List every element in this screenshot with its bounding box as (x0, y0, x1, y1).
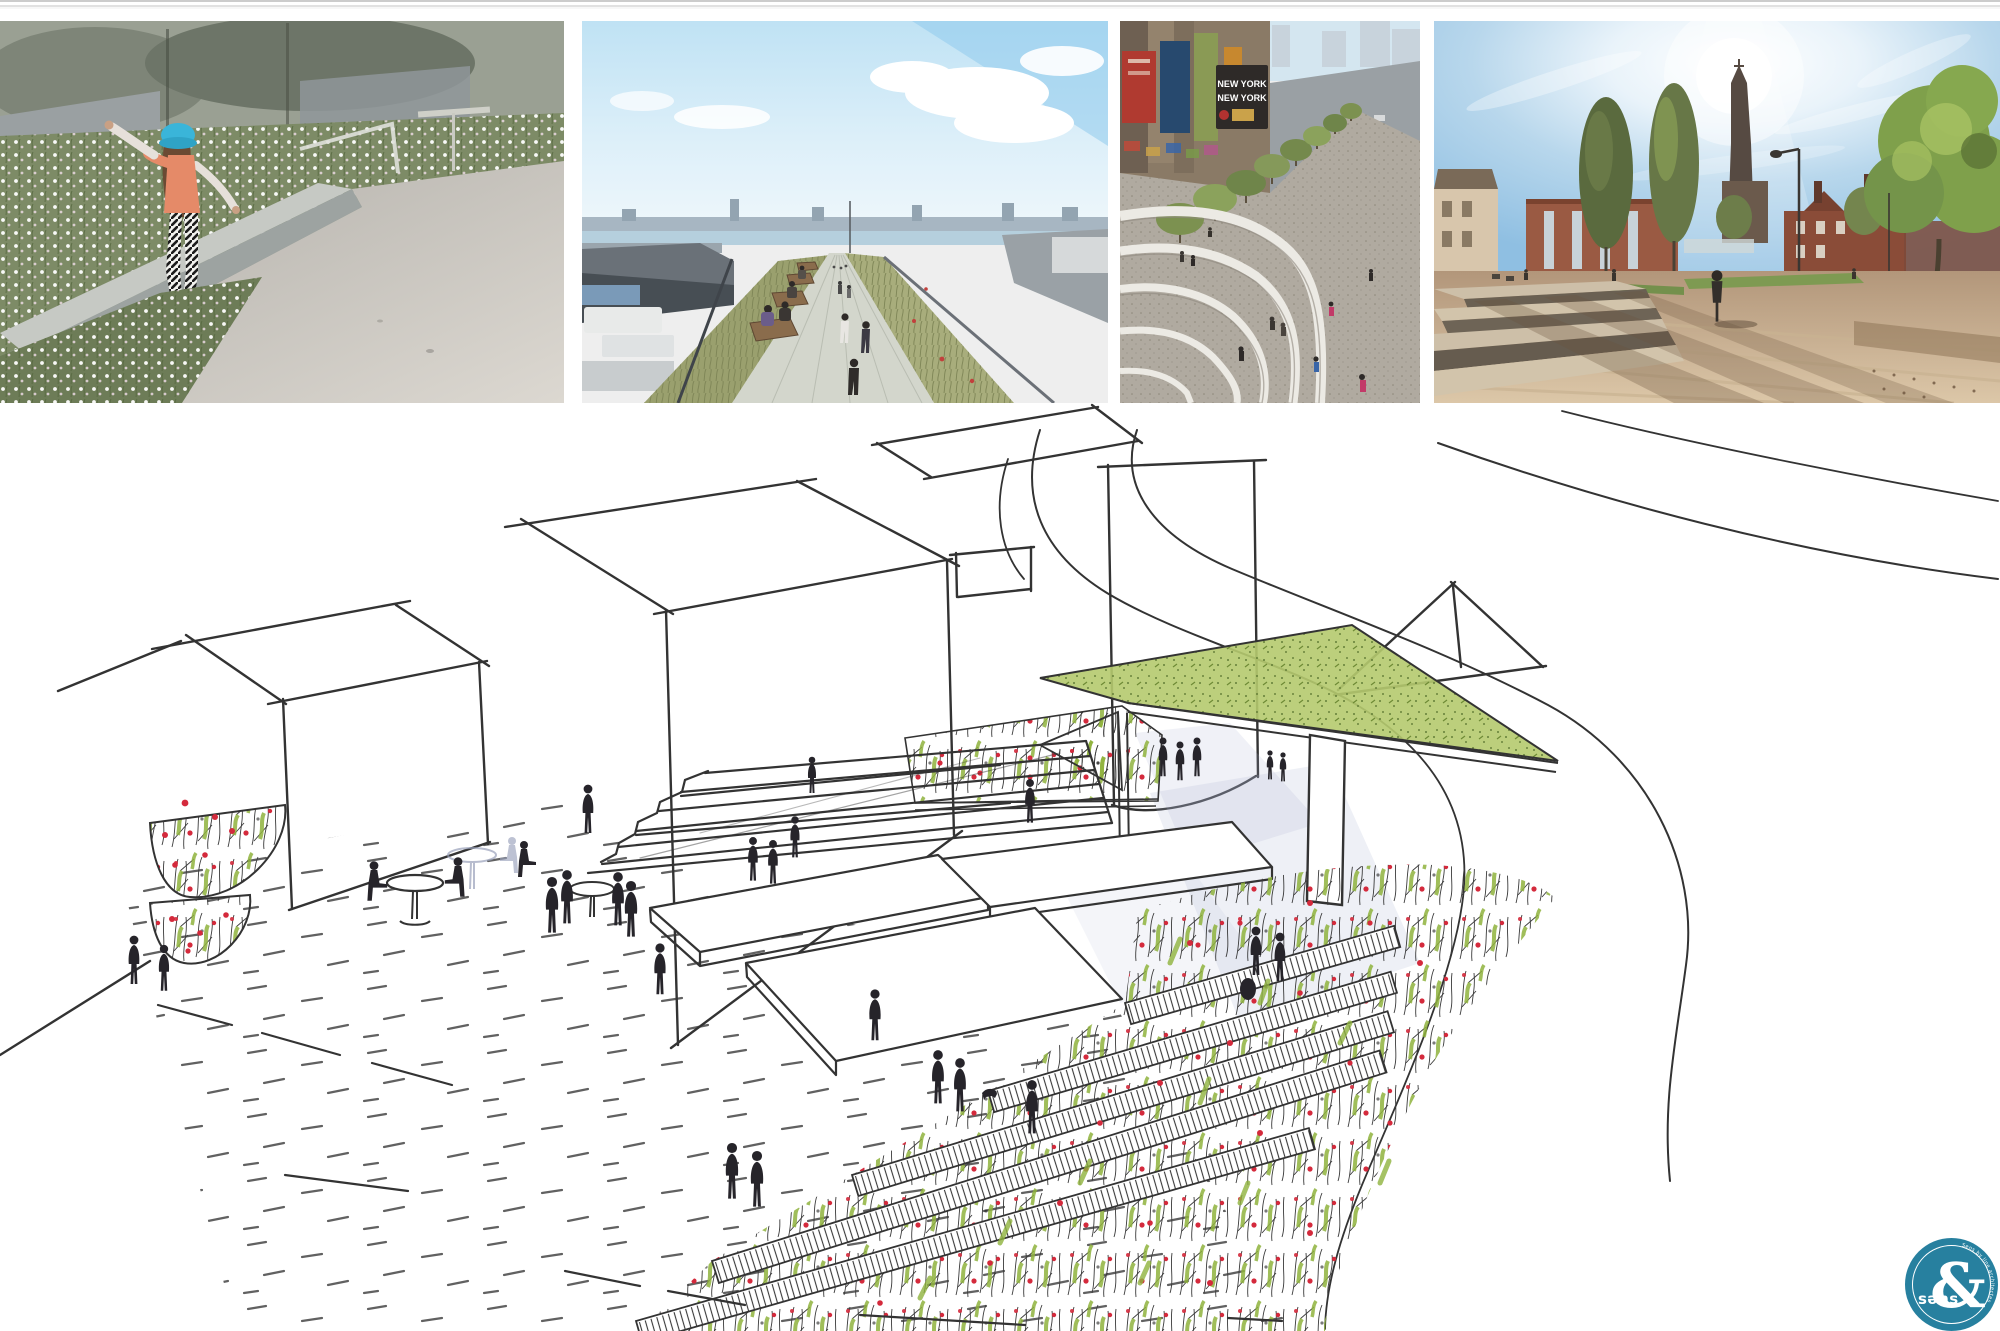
photo-high-line (582, 21, 1108, 403)
new-york-sign: NEW YORK NEW YORK (1216, 65, 1268, 129)
child-shirt (164, 155, 200, 213)
portfolio-page: NEW YORK NEW YORK (0, 0, 2000, 1331)
photo-gallery: NEW YORK NEW YORK (0, 21, 2000, 403)
cafe-table (387, 875, 443, 891)
concept-sketch (0, 403, 2000, 1331)
glass-canopy (1684, 239, 1754, 253)
concept-sketch-drawing (0, 403, 2000, 1331)
logo-ampersand: & (1930, 1249, 1986, 1322)
page-top-divider (0, 0, 2000, 9)
photo-town-square-image (1434, 21, 2000, 403)
photo-meadow-child (0, 21, 564, 403)
sign-line-2: NEW YORK (1217, 93, 1267, 103)
truck (584, 307, 662, 333)
studio-logo: & səns Sens by line architectes (1905, 1238, 1998, 1331)
photo-high-line-image (582, 21, 1108, 403)
city-skyline (582, 217, 1108, 233)
photo-stepped-plaza-image: NEW YORK NEW YORK (1120, 21, 1420, 403)
photo-meadow-child-image (0, 21, 564, 403)
photo-stepped-plaza: NEW YORK NEW YORK (1120, 21, 1420, 403)
photo-town-square (1434, 21, 2000, 403)
sign-line-1: NEW YORK (1217, 79, 1267, 89)
studio-logo-badge: & səns Sens by line architectes (1905, 1238, 1998, 1331)
billboard-blue (1160, 41, 1190, 133)
cafe-table (570, 882, 614, 896)
logo-wordmark: səns (1918, 1290, 1959, 1308)
